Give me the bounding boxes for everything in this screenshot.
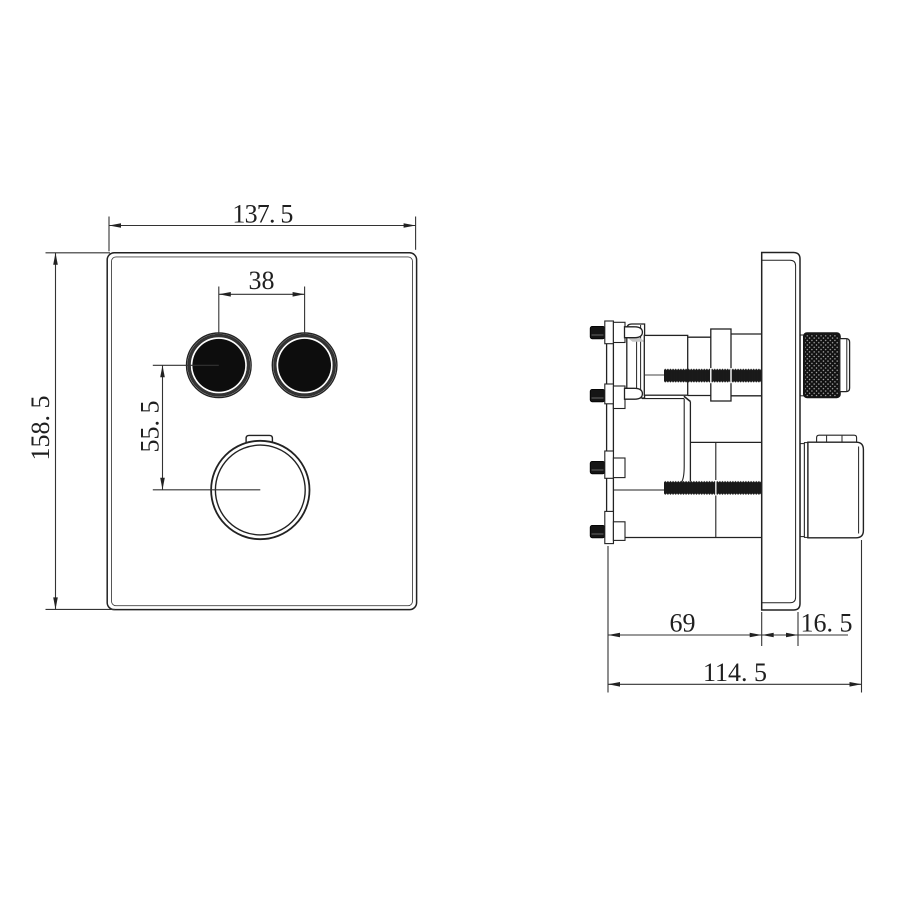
svg-text:137. 5: 137. 5 (232, 200, 292, 229)
svg-text:114. 5: 114. 5 (703, 658, 767, 687)
svg-text:69: 69 (670, 609, 696, 638)
svg-text:55. 5: 55. 5 (136, 401, 165, 453)
svg-text:16. 5: 16. 5 (801, 609, 853, 638)
svg-text:158. 5: 158. 5 (26, 396, 55, 461)
svg-text:38: 38 (249, 266, 275, 295)
